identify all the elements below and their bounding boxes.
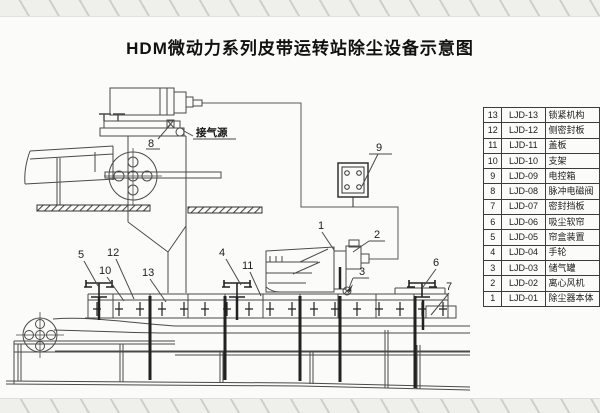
table-row: 5 LJD-05 帘盒装置 xyxy=(484,230,600,245)
part-code: LJD-07 xyxy=(502,199,545,214)
part-code: LJD-05 xyxy=(502,230,545,245)
part-number: 9 xyxy=(484,169,502,184)
table-row: 11 LJD-11 盖板 xyxy=(484,138,600,153)
unit-fan-motor xyxy=(346,240,369,269)
callout-3-label: 3 xyxy=(359,266,365,278)
air-source-port xyxy=(176,128,184,136)
sealing-enclosure xyxy=(85,288,456,388)
callout-1-label: 1 xyxy=(318,220,324,232)
electric-control-box xyxy=(338,163,368,207)
part-name: 盖板 xyxy=(545,138,600,153)
part-code: LJD-04 xyxy=(502,245,545,260)
part-number: 10 xyxy=(484,153,502,168)
table-row: 13 LJD-13 锁紧机构 xyxy=(484,108,600,123)
part-name: 除尘器本体 xyxy=(545,291,600,306)
table-row: 6 LJD-06 吸尘软帘 xyxy=(484,215,600,230)
table-row: 10 LJD-10 支架 xyxy=(484,153,600,168)
parts-list-table: 13 LJD-13 锁紧机构 12 LJD-12 侧密封板 11 LJD-11 … xyxy=(483,107,600,307)
table-row: 7 LJD-07 密封挡板 xyxy=(484,199,600,214)
callout-7-label: 7 xyxy=(446,281,452,293)
part-name: 支架 xyxy=(545,153,600,168)
part-code: LJD-09 xyxy=(502,169,545,184)
part-code: LJD-02 xyxy=(502,276,545,291)
callout-10-label: 10 xyxy=(99,265,111,277)
callout-9-label: 9 xyxy=(376,142,382,154)
part-code: LJD-01 xyxy=(502,291,545,306)
part-number: 13 xyxy=(484,108,502,123)
callout-11-label: 11 xyxy=(242,260,253,272)
callout-8-label: 8 xyxy=(148,138,154,150)
part-number: 6 xyxy=(484,215,502,230)
belt-station-dust-unit xyxy=(266,240,369,295)
part-name: 侧密封板 xyxy=(545,123,600,138)
table-row: 4 LJD-04 手轮 xyxy=(484,245,600,260)
part-number: 3 xyxy=(484,260,502,275)
callout-5-label: 5 xyxy=(78,249,84,261)
platform-right xyxy=(188,207,262,213)
part-code: LJD-10 xyxy=(502,153,545,168)
part-code: LJD-12 xyxy=(502,123,545,138)
top-centrifugal-fan xyxy=(110,88,202,115)
support-posts xyxy=(150,296,415,388)
table-row: 2 LJD-02 离心风机 xyxy=(484,276,600,291)
part-name: 帘盒装置 xyxy=(545,230,600,245)
callout-13-label: 13 xyxy=(142,267,154,279)
fan-housing-circle xyxy=(104,148,221,205)
part-code: LJD-06 xyxy=(502,215,545,230)
part-number: 2 xyxy=(484,276,502,291)
platform-left xyxy=(37,205,150,211)
callout-6-label: 6 xyxy=(433,257,439,269)
incoming-belt-chute xyxy=(25,146,115,205)
locking-bolts xyxy=(93,302,447,316)
part-name: 储气罐 xyxy=(545,260,600,275)
part-name: 电控箱 xyxy=(545,169,600,184)
part-name: 密封挡板 xyxy=(545,199,600,214)
part-number: 4 xyxy=(484,245,502,260)
table-row: 3 LJD-03 储气罐 xyxy=(484,260,600,275)
part-name: 脉冲电磁阀 xyxy=(545,184,600,199)
part-code: LJD-11 xyxy=(502,138,545,153)
callout-12-label: 12 xyxy=(107,247,119,259)
part-name: 锁紧机构 xyxy=(545,108,600,123)
part-number: 11 xyxy=(484,138,502,153)
part-code: LJD-13 xyxy=(502,108,545,123)
table-row: 9 LJD-09 电控箱 xyxy=(484,169,600,184)
seal-baffle xyxy=(426,306,456,318)
part-number: 8 xyxy=(484,184,502,199)
support-frame xyxy=(6,330,470,390)
part-number: 12 xyxy=(484,123,502,138)
main-dust-collector-body xyxy=(25,88,262,293)
callout-2-label: 2 xyxy=(374,229,380,241)
air-source-label: 接气源 xyxy=(196,126,228,139)
belt-conveyor xyxy=(6,280,470,390)
table-row: 1 LJD-01 除尘器本体 xyxy=(484,291,600,306)
part-name: 离心风机 xyxy=(545,276,600,291)
table-row: 12 LJD-12 侧密封板 xyxy=(484,123,600,138)
part-code: LJD-03 xyxy=(502,260,545,275)
table-row: 8 LJD-08 脉冲电磁阀 xyxy=(484,184,600,199)
callout-4-label: 4 xyxy=(219,247,225,259)
part-code: LJD-08 xyxy=(502,184,545,199)
part-number: 7 xyxy=(484,199,502,214)
part-number: 5 xyxy=(484,230,502,245)
part-number: 1 xyxy=(484,291,502,306)
part-name: 吸尘软帘 xyxy=(545,215,600,230)
part-name: 手轮 xyxy=(545,245,600,260)
